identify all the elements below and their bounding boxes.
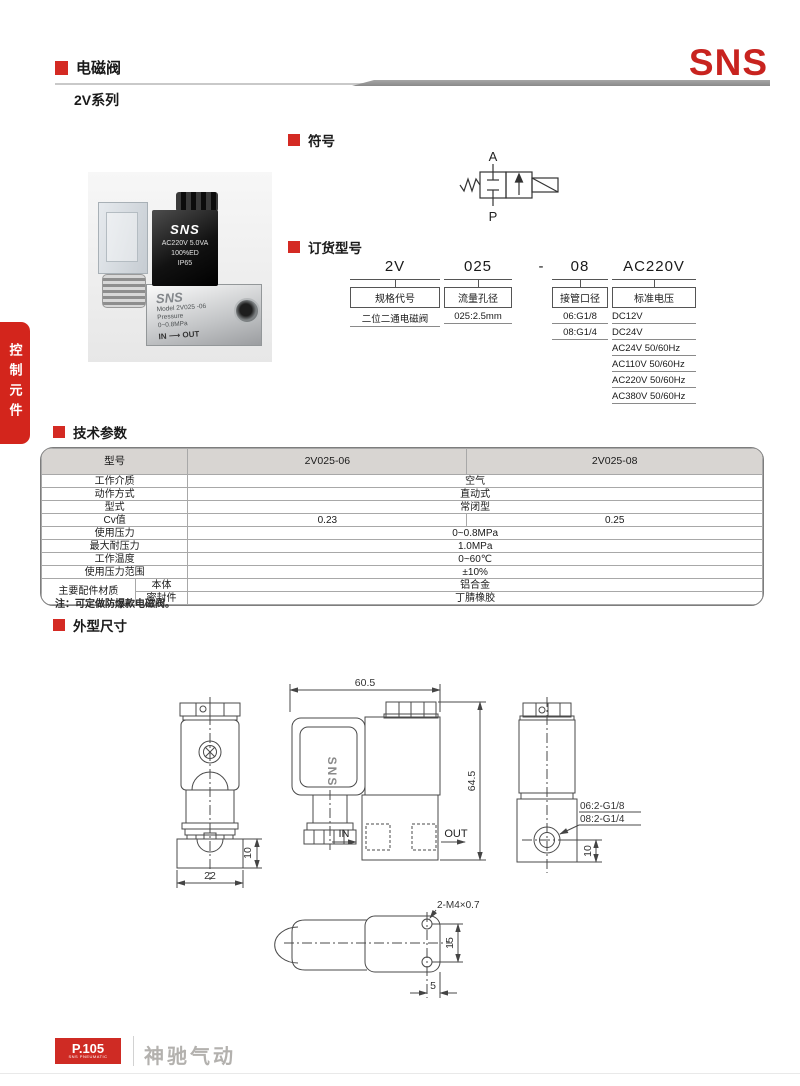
spec-label: 型式 — [42, 501, 188, 514]
dim-side-height: 64.5 — [466, 771, 478, 792]
page-bottom-rule — [0, 1073, 800, 1074]
spec-label: 动作方式 — [42, 488, 188, 501]
photo-port-hole — [234, 298, 260, 324]
ordering-option: 08:G1/4 — [552, 324, 608, 340]
product-photo: SNS Model 2V025 -06 Pressure 0~0.8MPa IN… — [88, 172, 272, 362]
ordering-code: AC220V — [612, 258, 696, 280]
section-head-dimensions: 外型尺寸 — [53, 615, 127, 635]
ordering-option: AC110V 50/60Hz — [612, 356, 696, 372]
red-square-bullet — [55, 61, 68, 75]
dim-side-width: 60.5 — [355, 677, 376, 689]
bottom-thread-label: 2-M4×0.7 — [437, 900, 480, 911]
red-square-bullet — [53, 426, 65, 438]
photo-threaded-fitting — [102, 274, 146, 308]
ordering-column-voltage: AC220V 标准电压 DC12V DC24V AC24V 50/60Hz AC… — [612, 258, 696, 404]
photo-coil-ip: IP65 — [152, 260, 218, 267]
ordering-label-box: 标准电压 — [612, 287, 696, 308]
spec-label: 工作温度 — [42, 553, 188, 566]
brand-logo: SNS — [689, 42, 768, 84]
photo-coil-brand: SNS — [152, 222, 218, 237]
spec-value: 铝合金 — [188, 579, 763, 592]
ordering-column-orifice: 025 流量孔径 025:2.5mm — [444, 258, 512, 324]
symbol-port-p: P — [489, 209, 498, 224]
specs-table: 型号 2V025-06 2V025-08 工作介质 空气 动作方式 直动式 型式… — [40, 447, 764, 606]
photo-coil-duty: 100%ED — [152, 250, 218, 257]
side-out-label: OUT — [444, 828, 468, 840]
ordering-label-box: 流量孔径 — [444, 287, 512, 308]
ordering-tick — [478, 280, 479, 287]
ordering-code: 025 — [444, 258, 512, 280]
symbol-port-a: A — [489, 149, 498, 164]
ordering-tick — [395, 280, 396, 287]
spec-value: ±10% — [188, 566, 763, 579]
ordering-option: 025:2.5mm — [444, 308, 512, 324]
ordering-label-box: 规格代号 — [350, 287, 440, 308]
photo-connector — [98, 202, 148, 274]
spec-header-2v025-08: 2V025-08 — [467, 449, 763, 475]
photo-connector-window — [106, 212, 138, 262]
red-square-bullet — [53, 619, 65, 631]
spec-label: 使用压力范围 — [42, 566, 188, 579]
side-in-label: IN — [339, 828, 350, 840]
dim-bottom-pitch: 15 — [444, 937, 456, 949]
ordering-code: 2V — [350, 258, 440, 280]
category-title: 电磁阀 — [76, 57, 121, 78]
spec-label: 使用压力 — [42, 527, 188, 540]
spec-value: 0~60℃ — [188, 553, 763, 566]
section-title-symbol: 符号 — [308, 130, 335, 150]
ordering-option: AC24V 50/60Hz — [612, 340, 696, 356]
section-head-symbol: 符号 — [288, 130, 335, 150]
ordering-label-box: 接管口径 — [552, 287, 608, 308]
dim-bottom-edge: 5 — [430, 980, 436, 992]
ordering-separator: - — [534, 258, 548, 275]
specs-note: 注：可定做防爆款电磁阀。 — [55, 595, 175, 610]
section-title-specs: 技术参数 — [73, 422, 127, 442]
rear-port-label-g14: 08:2-G1/4 — [580, 814, 625, 825]
sidebar-tab-control-elements: 控制元件 — [0, 322, 30, 444]
spec-label: Cv值 — [42, 514, 188, 527]
spec-label: 最大耐压力 — [42, 540, 188, 553]
ordering-tick — [654, 280, 655, 287]
dim-front-base-height: 10 — [242, 847, 254, 859]
dimension-drawings: 22 10 SNS 60.5 64.5 — [0, 645, 800, 1040]
page-number-subtext: SNS PNEUMATIC — [55, 1055, 121, 1059]
spec-value: 常闭型 — [188, 501, 763, 514]
red-square-bullet — [288, 134, 300, 146]
category-header: 电磁阀 — [55, 57, 121, 78]
spec-value: 1.0MPa — [188, 540, 763, 553]
rear-view — [517, 697, 641, 873]
ordering-option: AC220V 50/60Hz — [612, 372, 696, 388]
spec-header-model: 型号 — [42, 449, 188, 475]
spec-value: 直动式 — [188, 488, 763, 501]
rear-port-label-g18: 06:2-G1/8 — [580, 801, 625, 812]
section-title-ordering: 订货型号 — [308, 237, 362, 257]
photo-coil: SNS AC220V 5.0VA 100%ED IP65 — [152, 210, 218, 286]
ordering-column-spec: 2V 规格代号 二位二通电磁阀 — [350, 258, 440, 327]
ordering-option: AC380V 50/60Hz — [612, 388, 696, 404]
spec-value: 0.25 — [467, 514, 763, 527]
catalog-page: 电磁阀 2V系列 SNS 控制元件 SNS Model 2V025 -06 Pr… — [0, 0, 800, 1086]
dim-front-width: 22 — [204, 870, 216, 882]
spec-value: 空气 — [188, 475, 763, 488]
spec-value: 丁腈橡胶 — [188, 592, 763, 605]
ordering-column-port: 08 接管口径 06:G1/8 08:G1/4 — [552, 258, 608, 340]
symbol-lines — [460, 164, 558, 206]
side-view-brand: SNS — [325, 757, 339, 788]
ordering-option: 06:G1/8 — [552, 308, 608, 324]
page-number-badge: P.105 SNS PNEUMATIC — [55, 1038, 121, 1064]
section-title-dimensions: 外型尺寸 — [73, 615, 127, 635]
company-name: 神驰气动 — [144, 1040, 236, 1069]
ordering-code: 08 — [552, 258, 608, 280]
spec-label: 工作介质 — [42, 475, 188, 488]
ordering-option: 二位二通电磁阀 — [350, 308, 440, 327]
ordering-option: DC12V — [612, 308, 696, 324]
spec-value: 0~0.8MPa — [188, 527, 763, 540]
red-square-bullet — [288, 241, 300, 253]
header-rule-thick — [352, 80, 770, 86]
section-head-ordering: 订货型号 — [288, 237, 362, 257]
photo-coil-spec: AC220V 5.0VA — [152, 240, 218, 247]
series-title: 2V系列 — [74, 90, 119, 110]
spec-header-2v025-06: 2V025-06 — [188, 449, 467, 475]
ordering-option: DC24V — [612, 324, 696, 340]
section-head-specs: 技术参数 — [53, 422, 127, 442]
photo-coil-cap — [176, 192, 218, 212]
footer-divider — [133, 1036, 134, 1066]
sidebar-tab-label: 控制元件 — [6, 343, 25, 423]
ordering-tick — [580, 280, 581, 287]
spec-value: 0.23 — [188, 514, 467, 527]
spec-sublabel: 本体 — [135, 579, 188, 592]
dim-rear-offset: 10 — [582, 845, 594, 857]
valve-symbol-diagram: A P — [430, 148, 600, 226]
